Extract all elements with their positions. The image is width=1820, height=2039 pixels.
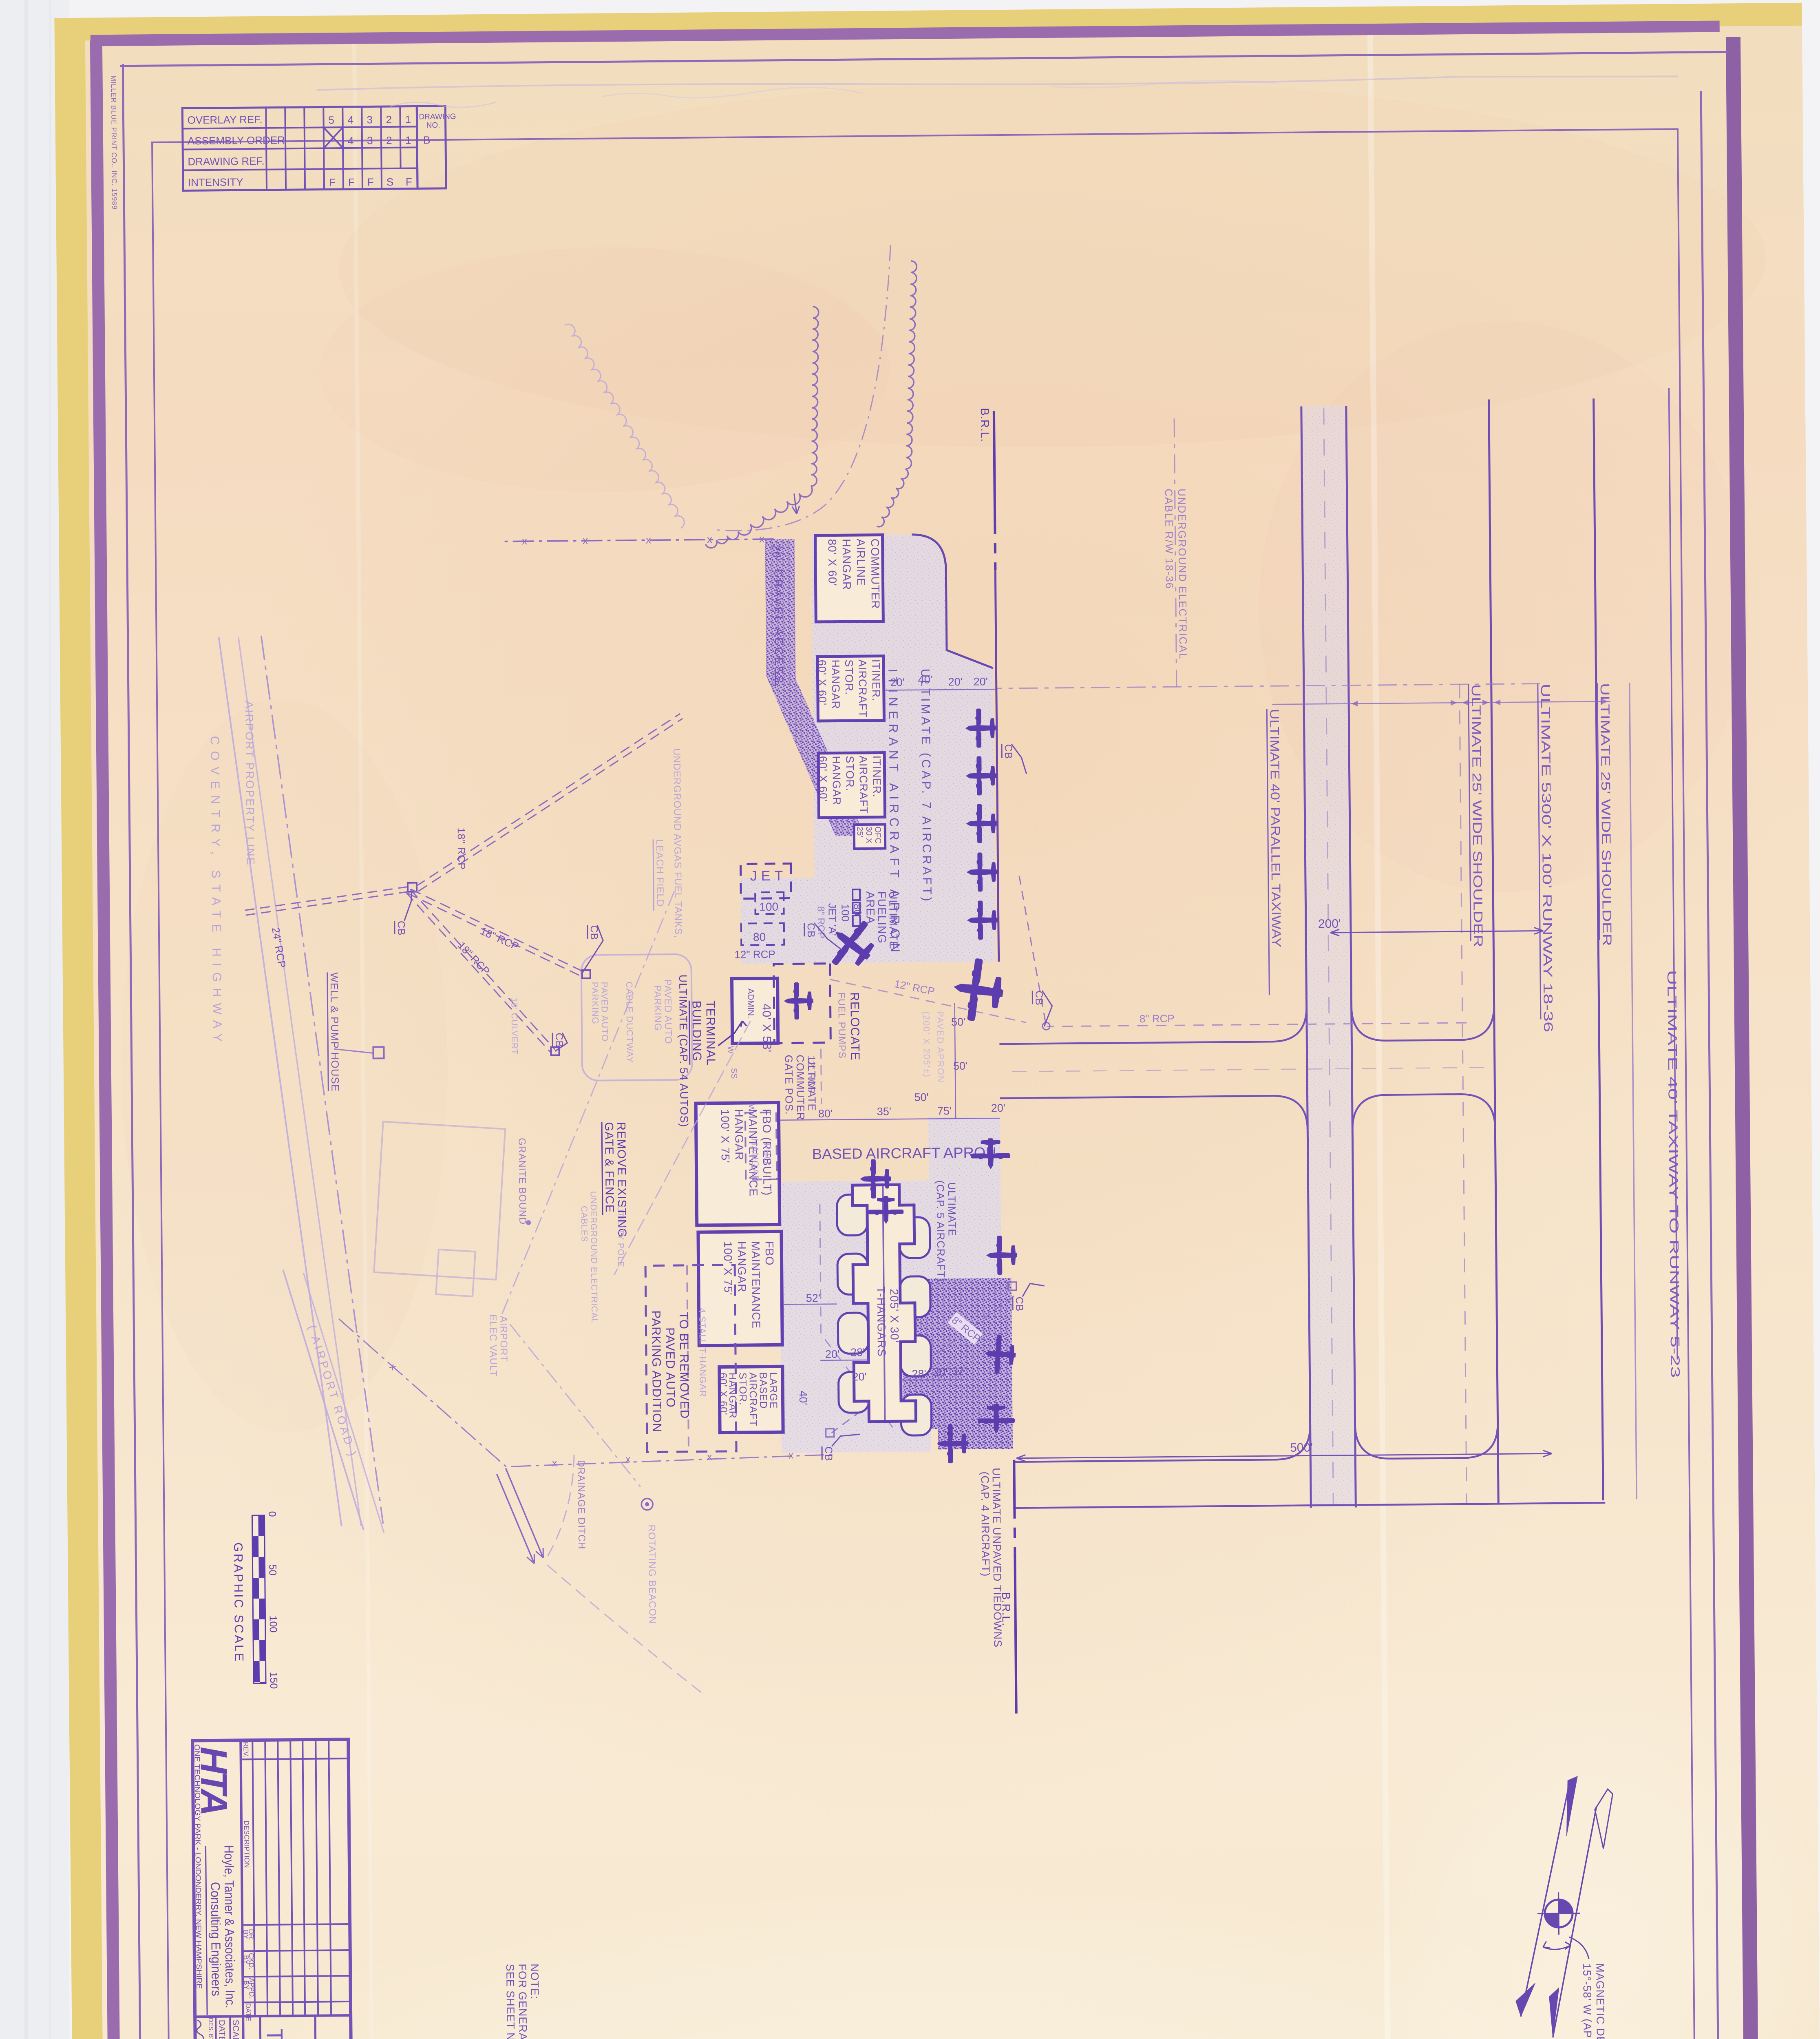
svg-text:OFC: OFC bbox=[873, 827, 882, 844]
svg-text:HANGAR: HANGAR bbox=[749, 1138, 760, 1183]
svg-text:UNDERGROUND AVGAS FUEL TANKS,: UNDERGROUND AVGAS FUEL TANKS, bbox=[671, 748, 684, 938]
svg-text:TERMINAL: TERMINAL bbox=[703, 1000, 717, 1066]
svg-text:100' X 75': 100' X 75' bbox=[719, 1109, 732, 1163]
svg-text:ROTATING BEACON: ROTATING BEACON bbox=[646, 1524, 658, 1624]
svg-text:20': 20' bbox=[770, 545, 783, 561]
svg-text:DRAWING REF.: DRAWING REF. bbox=[188, 155, 265, 168]
svg-text:GRAVEL ACCESS: GRAVEL ACCESS bbox=[772, 569, 785, 685]
svg-text:REV.: REV. bbox=[242, 1742, 250, 1757]
svg-text:18" RCP: 18" RCP bbox=[455, 827, 467, 870]
svg-text:1: 1 bbox=[405, 113, 411, 126]
svg-text:4: 4 bbox=[347, 114, 353, 126]
svg-text:FUEL PUMPS: FUEL PUMPS bbox=[836, 992, 847, 1059]
svg-text:30 X: 30 X bbox=[864, 827, 873, 843]
svg-text:GATE POS.: GATE POS. bbox=[783, 1055, 795, 1115]
svg-text:CABLE DUCTWAY: CABLE DUCTWAY bbox=[624, 982, 635, 1063]
svg-text:x: x bbox=[552, 1458, 557, 1469]
svg-text:UNDERGROUND ELECTRICAL: UNDERGROUND ELECTRICAL bbox=[1176, 489, 1190, 660]
svg-text:SCALE: 1" = 50': SCALE: 1" = 50' bbox=[231, 2019, 241, 2039]
svg-text:CB: CB bbox=[805, 923, 817, 938]
svg-text:DES. BY: DES. BY bbox=[207, 2018, 214, 2039]
svg-text:HANGAR: HANGAR bbox=[829, 659, 842, 709]
svg-text:HANGAR: HANGAR bbox=[736, 1241, 749, 1292]
svg-text:SEE SHEET NO. 2: SEE SHEET NO. 2 bbox=[504, 1964, 517, 2039]
svg-text:SS: SS bbox=[729, 1068, 738, 1079]
svg-text:MAGNETIC DECLINATION: MAGNETIC DECLINATION bbox=[1594, 1963, 1607, 2039]
svg-text:GATE & FENCE: GATE & FENCE bbox=[602, 1122, 616, 1213]
svg-text:ULTIMATE 25' WIDE SHOULDER: ULTIMATE 25' WIDE SHOULDER bbox=[1469, 684, 1486, 947]
svg-text:PARKING: PARKING bbox=[590, 982, 601, 1025]
svg-text:ULTIMATE: ULTIMATE bbox=[945, 1182, 958, 1236]
svg-text:100: 100 bbox=[267, 1616, 279, 1633]
svg-text:WELL & PUMP HOUSE: WELL & PUMP HOUSE bbox=[328, 972, 342, 1092]
svg-text:INTENSITY: INTENSITY bbox=[188, 176, 243, 188]
svg-text:NO.: NO. bbox=[426, 121, 440, 130]
svg-text:PAVED APRON: PAVED APRON bbox=[935, 1011, 946, 1083]
svg-text:(CAP. 4 AIRCRAFT): (CAP. 4 AIRCRAFT) bbox=[979, 1471, 992, 1577]
svg-text:BY: BY bbox=[242, 1930, 250, 1939]
svg-text:3: 3 bbox=[367, 113, 373, 126]
svg-text:AIRCRAFT: AIRCRAFT bbox=[856, 659, 869, 718]
svg-text:DRAINAGE DITCH: DRAINAGE DITCH bbox=[575, 1460, 587, 1550]
svg-text:20': 20' bbox=[948, 676, 963, 688]
svg-text:80: 80 bbox=[753, 931, 766, 943]
svg-text:CABLES: CABLES bbox=[579, 1206, 589, 1242]
svg-text:ADMIN.: ADMIN. bbox=[746, 988, 755, 1018]
svg-text:100: 100 bbox=[839, 904, 851, 922]
svg-text:0: 0 bbox=[266, 1511, 278, 1517]
svg-text:ITINER.: ITINER. bbox=[870, 756, 883, 798]
svg-text:500': 500' bbox=[1290, 1441, 1313, 1454]
svg-text:F: F bbox=[329, 176, 336, 188]
svg-text:ULTIMATE (CAP. 54 AUTOS): ULTIMATE (CAP. 54 AUTOS) bbox=[677, 975, 690, 1128]
svg-text:205' X 30': 205' X 30' bbox=[888, 1289, 901, 1343]
svg-text:FBO: FBO bbox=[762, 1143, 773, 1165]
svg-text:ULTIMATE: ULTIMATE bbox=[806, 1057, 818, 1111]
svg-text:2: 2 bbox=[386, 134, 392, 146]
svg-text:28': 28' bbox=[912, 1368, 926, 1380]
svg-text:80' X 60': 80' X 60' bbox=[826, 539, 839, 586]
svg-text:80': 80' bbox=[818, 1108, 833, 1120]
svg-text:COMMUTER: COMMUTER bbox=[794, 1055, 807, 1120]
svg-text:x: x bbox=[707, 1451, 712, 1462]
svg-text:32': 32' bbox=[952, 1365, 966, 1377]
svg-text:ITINER.: ITINER. bbox=[870, 659, 882, 701]
svg-text:UTILITY POLE: UTILITY POLE bbox=[616, 1205, 625, 1267]
svg-text:(200' X 205'±): (200' X 205'±) bbox=[921, 1011, 932, 1078]
svg-text:DATE: DATE bbox=[244, 2003, 252, 2021]
svg-text:20': 20' bbox=[991, 1102, 1005, 1114]
svg-text:STOR.: STOR. bbox=[843, 659, 855, 695]
svg-text:100' X 75': 100' X 75' bbox=[722, 1241, 735, 1296]
svg-text:BUILDING: BUILDING bbox=[689, 1000, 703, 1062]
svg-text:x: x bbox=[707, 533, 712, 545]
svg-text:CB: CB bbox=[823, 1446, 834, 1462]
svg-text:150: 150 bbox=[268, 1672, 279, 1689]
svg-text:4 STALL T-HANGAR: 4 STALL T-HANGAR bbox=[697, 1308, 708, 1397]
svg-text:40': 40' bbox=[918, 673, 932, 686]
svg-text:200': 200' bbox=[1318, 917, 1341, 931]
svg-text:AIRCRAFT: AIRCRAFT bbox=[857, 756, 870, 814]
svg-text:3: 3 bbox=[367, 134, 373, 146]
svg-text:CABLE R/W 18-36: CABLE R/W 18-36 bbox=[1163, 489, 1176, 589]
svg-text:DATE: OCT. 1979: DATE: OCT. 1979 bbox=[217, 2020, 227, 2039]
svg-text:PAVED AUTO: PAVED AUTO bbox=[599, 982, 610, 1042]
svg-text:BY: BY bbox=[242, 1955, 250, 1964]
svg-text:20': 20' bbox=[852, 1371, 866, 1383]
svg-text:HANGAR: HANGAR bbox=[830, 756, 843, 805]
svg-text:UNDERGROUND ELECTRICAL: UNDERGROUND ELECTRICAL bbox=[589, 1191, 599, 1324]
svg-text:CB: CB bbox=[395, 921, 407, 936]
svg-text:LEACH FIELD: LEACH FIELD bbox=[654, 839, 665, 907]
svg-text:T-HANGARS: T-HANGARS bbox=[875, 1286, 888, 1357]
svg-text:ASSEMBLY ORDER: ASSEMBLY ORDER bbox=[188, 134, 285, 147]
svg-text:FBO: FBO bbox=[763, 1241, 776, 1266]
svg-text:F: F bbox=[367, 176, 374, 188]
svg-text:PAVED AUTO: PAVED AUTO bbox=[662, 979, 674, 1044]
svg-text:60' X 60': 60' X 60' bbox=[817, 756, 829, 802]
svg-text:STOR.: STOR. bbox=[844, 756, 856, 791]
svg-text:W: W bbox=[726, 1046, 735, 1054]
svg-text:ELEC VAULT: ELEC VAULT bbox=[487, 1314, 499, 1377]
svg-text:52': 52' bbox=[806, 1292, 820, 1304]
svg-text:DESCRIPTION: DESCRIPTION bbox=[243, 1820, 251, 1868]
svg-text:15°-58' W (APRIL 21, 1977): 15°-58' W (APRIL 21, 1977) bbox=[1581, 1963, 1594, 2039]
svg-text:Consulting Engineers: Consulting Engineers bbox=[208, 1882, 223, 1996]
svg-text:TERMINAL AREA PLAN: TERMINAL AREA PLAN bbox=[262, 2028, 289, 2039]
svg-text:JET: JET bbox=[750, 868, 787, 884]
svg-text:x: x bbox=[625, 1454, 630, 1465]
svg-text:CB: CB bbox=[1003, 744, 1014, 759]
svg-text:FUELING: FUELING bbox=[875, 891, 888, 944]
svg-text:50: 50 bbox=[267, 1564, 278, 1576]
svg-text:35': 35' bbox=[877, 1105, 891, 1117]
svg-text:B.R.L.: B.R.L. bbox=[1000, 1592, 1013, 1626]
svg-text:GRAPHIC SCALE: GRAPHIC SCALE bbox=[231, 1542, 246, 1663]
svg-text:(CAP. 5 AIRCRAFT): (CAP. 5 AIRCRAFT) bbox=[934, 1180, 947, 1282]
svg-text:AREA: AREA bbox=[864, 891, 877, 924]
svg-text:28': 28' bbox=[850, 1346, 865, 1358]
svg-text:100: 100 bbox=[759, 900, 778, 913]
svg-text:B.R.L.: B.R.L. bbox=[978, 408, 992, 442]
svg-text:F: F bbox=[348, 176, 355, 188]
svg-text:JET 'A': JET 'A' bbox=[826, 903, 839, 936]
svg-text:CB: CB bbox=[1014, 1297, 1025, 1312]
svg-text:B: B bbox=[423, 134, 431, 146]
svg-text:COMMUTER: COMMUTER bbox=[869, 539, 882, 609]
svg-text:AIRPORT PROPERTY LINE: AIRPORT PROPERTY LINE bbox=[243, 701, 257, 866]
svg-text:4: 4 bbox=[348, 135, 354, 147]
svg-text:HANGAR: HANGAR bbox=[840, 539, 853, 590]
svg-text:ULTIMATE 25' WIDE SHOULDER: ULTIMATE 25' WIDE SHOULDER bbox=[1598, 683, 1615, 946]
svg-text:AIRPORT: AIRPORT bbox=[498, 1316, 509, 1362]
svg-text:HANGAR: HANGAR bbox=[733, 1109, 746, 1161]
svg-text:50': 50' bbox=[914, 1091, 928, 1104]
svg-text:1: 1 bbox=[405, 134, 411, 146]
svg-text:75': 75' bbox=[937, 1105, 952, 1117]
svg-text:8" RCP: 8" RCP bbox=[1140, 1012, 1175, 1025]
svg-text:x: x bbox=[646, 533, 651, 546]
svg-text:MILLER BLUE PRINT CO., INC. 15: MILLER BLUE PRINT CO., INC. 15989 bbox=[110, 75, 119, 210]
svg-text:ULTIMATE (CAP. 7 AIRCRAFT): ULTIMATE (CAP. 7 AIRCRAFT) bbox=[918, 668, 934, 903]
svg-text:TO BE REMOVED: TO BE REMOVED bbox=[677, 1312, 691, 1419]
svg-text:S: S bbox=[387, 176, 394, 188]
svg-text:40': 40' bbox=[797, 1391, 809, 1405]
svg-text:20': 20' bbox=[825, 1348, 839, 1360]
svg-text:PARKING ADDITION: PARKING ADDITION bbox=[649, 1310, 664, 1432]
svg-text:MAINTENANCE: MAINTENANCE bbox=[749, 1241, 763, 1329]
svg-text:DRAWING: DRAWING bbox=[419, 113, 456, 122]
svg-text:18' CULVERT: 18' CULVERT bbox=[509, 997, 519, 1055]
svg-text:20': 20' bbox=[933, 1366, 947, 1378]
svg-text:x: x bbox=[583, 534, 588, 546]
svg-text:GRANITE BOUND: GRANITE BOUND bbox=[516, 1138, 528, 1225]
svg-text:OVERLAY REF.: OVERLAY REF. bbox=[187, 113, 262, 126]
svg-text:BY: BY bbox=[242, 1980, 250, 1990]
svg-text:60' X 60': 60' X 60' bbox=[816, 660, 828, 706]
svg-text:ULTIMATE 40' PARALLEL TAXIWAY: ULTIMATE 40' PARALLEL TAXIWAY bbox=[1267, 709, 1283, 947]
svg-text:80: 80 bbox=[851, 904, 864, 916]
svg-text:40' X 58': 40' X 58' bbox=[760, 1004, 773, 1053]
svg-text:25': 25' bbox=[855, 827, 864, 837]
svg-text:PAVED AUTO: PAVED AUTO bbox=[663, 1327, 677, 1408]
svg-text:20': 20' bbox=[974, 675, 988, 688]
svg-text:F: F bbox=[406, 176, 412, 188]
svg-text:x: x bbox=[789, 1450, 793, 1461]
svg-text:2: 2 bbox=[386, 113, 392, 126]
svg-text:50': 50' bbox=[951, 1016, 965, 1028]
svg-text:RELOCATE: RELOCATE bbox=[848, 992, 861, 1061]
svg-text:W: W bbox=[747, 1104, 756, 1112]
svg-text:5: 5 bbox=[328, 114, 334, 126]
svg-text:20': 20' bbox=[890, 676, 905, 688]
svg-text:NOTE:: NOTE: bbox=[528, 1964, 541, 1999]
svg-text:AIRLINE: AIRLINE bbox=[855, 539, 868, 586]
svg-text:BASED AIRCRAFT APRON: BASED AIRCRAFT APRON bbox=[812, 1144, 996, 1162]
svg-text:x: x bbox=[522, 535, 527, 547]
svg-text:x: x bbox=[759, 533, 764, 545]
svg-text:PARKING: PARKING bbox=[652, 985, 663, 1031]
svg-text:12" RCP: 12" RCP bbox=[734, 948, 775, 961]
svg-text:60' X 60': 60' X 60' bbox=[717, 1373, 729, 1415]
svg-text:COVENTRY, STATE HIGHWAY: COVENTRY, STATE HIGHWAY bbox=[208, 736, 224, 1048]
svg-text:FOR GENERAL NOTES AND LEGEND: FOR GENERAL NOTES AND LEGEND bbox=[516, 1964, 530, 2039]
